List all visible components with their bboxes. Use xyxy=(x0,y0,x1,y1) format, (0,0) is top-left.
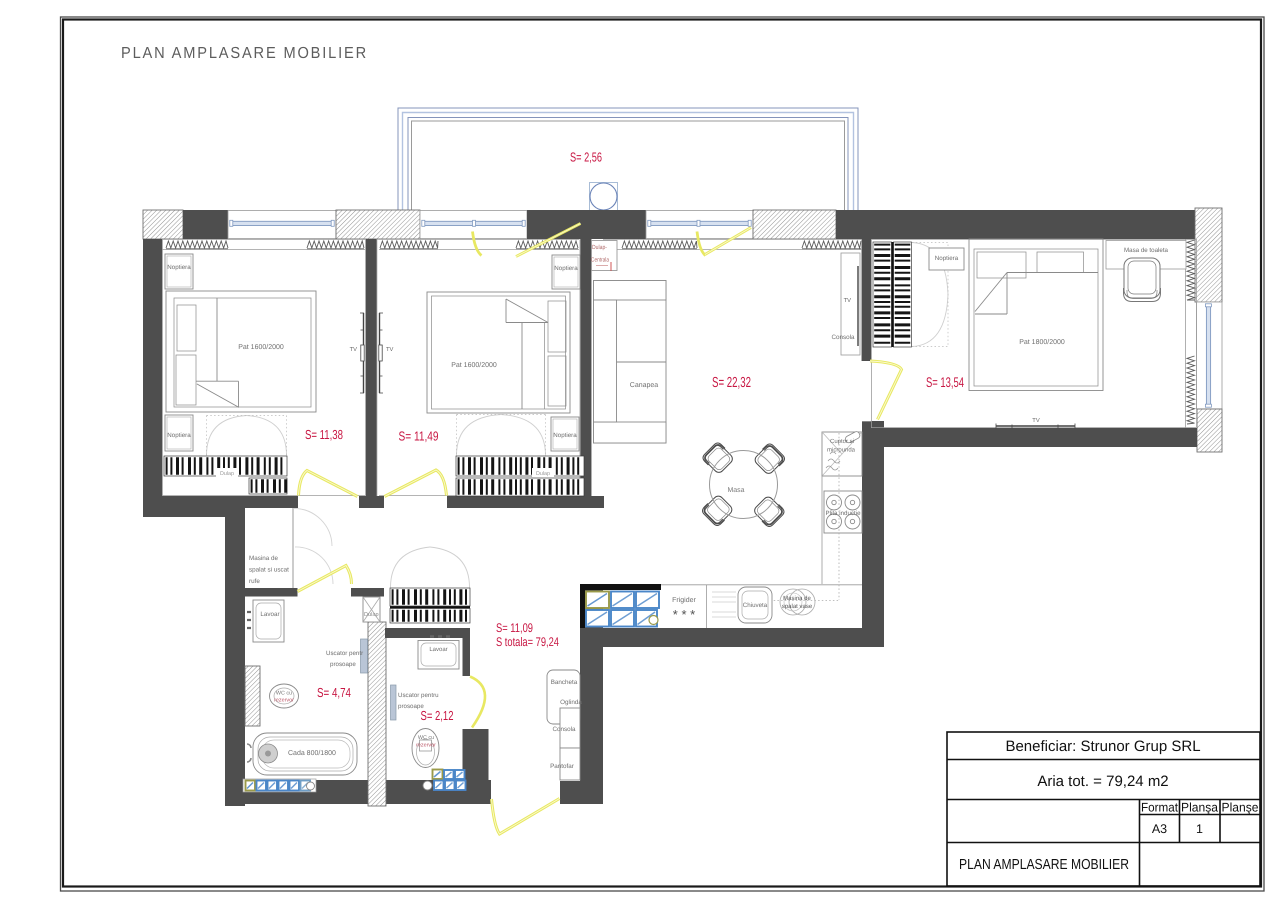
svg-text:TV: TV xyxy=(844,298,852,304)
svg-text:Oglinda: Oglinda xyxy=(560,699,582,706)
svg-text:TV: TV xyxy=(1032,418,1040,424)
svg-text:Dulap: Dulap xyxy=(364,611,379,618)
svg-text:Noptiera: Noptiera xyxy=(167,264,191,271)
svg-text:Lavoar: Lavoar xyxy=(260,611,279,618)
svg-text:Dulap-: Dulap- xyxy=(592,244,607,251)
svg-text:1: 1 xyxy=(1196,822,1203,836)
svg-text:Frigider: Frigider xyxy=(672,596,696,604)
svg-text:Noptiera: Noptiera xyxy=(553,432,577,439)
svg-text:Noptiera: Noptiera xyxy=(167,432,191,439)
svg-text:Lavoar: Lavoar xyxy=(429,646,447,653)
svg-text:* * *: * * * xyxy=(673,607,695,622)
svg-text:Uscator pentr: Uscator pentr xyxy=(326,650,363,657)
svg-text:TV: TV xyxy=(386,347,394,353)
svg-text:rezervor: rezervor xyxy=(416,743,436,749)
svg-text:S= 22,32: S= 22,32 xyxy=(712,375,751,391)
svg-text:Chiuveta: Chiuveta xyxy=(743,602,768,609)
svg-text:rufe: rufe xyxy=(249,578,260,585)
svg-text:Planşa: Planşa xyxy=(1181,801,1218,815)
svg-text:S= 2,12: S= 2,12 xyxy=(421,708,454,723)
svg-text:Canapea: Canapea xyxy=(630,382,659,389)
svg-text:Dulap: Dulap xyxy=(536,471,550,477)
svg-text:Masina de: Masina de xyxy=(783,595,811,602)
svg-text:Masina de: Masina de xyxy=(249,555,279,562)
svg-text:Aria tot. = 79,24 m2: Aria tot. = 79,24 m2 xyxy=(1037,773,1168,790)
svg-text:S= 11,09: S= 11,09 xyxy=(496,621,533,635)
svg-text:PLAN AMPLASARE MOBILIER: PLAN AMPLASARE MOBILIER xyxy=(121,45,368,62)
svg-text:Pantofar: Pantofar xyxy=(550,763,574,770)
svg-text:Cada 800/1800: Cada 800/1800 xyxy=(288,749,336,757)
svg-text:Consola: Consola xyxy=(831,334,855,341)
svg-text:Bancheta: Bancheta xyxy=(551,679,578,686)
svg-text:spalat si uscat: spalat si uscat xyxy=(249,567,289,574)
svg-text:Consola: Consola xyxy=(552,726,576,733)
svg-text:Uscator pentru: Uscator pentru xyxy=(398,692,439,699)
svg-text:S= 13,54: S= 13,54 xyxy=(926,374,964,390)
svg-text:Pat 1600/2000: Pat 1600/2000 xyxy=(451,361,497,369)
svg-text:Cuptor si: Cuptor si xyxy=(830,438,854,445)
svg-text:Noptiera: Noptiera xyxy=(935,255,959,262)
svg-text:Beneficiar: Strunor Grup SRL: Beneficiar: Strunor Grup SRL xyxy=(1005,738,1200,755)
svg-text:rezervor: rezervor xyxy=(274,698,294,704)
svg-text:PLAN AMPLASARE MOBILIER: PLAN AMPLASARE MOBILIER xyxy=(959,857,1129,873)
svg-text:S= 11,38: S= 11,38 xyxy=(305,427,343,442)
svg-text:A3: A3 xyxy=(1152,822,1167,836)
svg-text:spalat vase: spalat vase xyxy=(782,603,813,610)
svg-text:Pat 1800/2000: Pat 1800/2000 xyxy=(1019,338,1065,346)
svg-text:prosoape: prosoape xyxy=(330,661,356,668)
svg-text:Format: Format xyxy=(1141,801,1178,815)
svg-text:Centrala: Centrala xyxy=(591,257,610,264)
svg-text:Dulap: Dulap xyxy=(220,471,234,477)
svg-text:WC cu: WC cu xyxy=(276,691,292,697)
svg-text:S= 2,56: S= 2,56 xyxy=(570,150,602,165)
svg-text:Plita inductie: Plita inductie xyxy=(825,510,861,517)
svg-text:S= 4,74: S= 4,74 xyxy=(317,685,351,700)
svg-text:Planşe: Planşe xyxy=(1222,801,1259,815)
svg-text:S totala= 79,24: S totala= 79,24 xyxy=(496,635,559,649)
svg-text:Pat 1600/2000: Pat 1600/2000 xyxy=(238,343,284,351)
svg-text:Masa de toaleta: Masa de toaleta xyxy=(1124,247,1168,254)
svg-text:TV: TV xyxy=(350,347,358,353)
svg-text:WC cu: WC cu xyxy=(418,735,434,741)
svg-text:Masa: Masa xyxy=(727,487,744,494)
svg-text:S= 11,49: S= 11,49 xyxy=(399,429,439,444)
svg-text:Noptiera: Noptiera xyxy=(554,265,578,272)
svg-text:microunda: microunda xyxy=(827,447,856,454)
